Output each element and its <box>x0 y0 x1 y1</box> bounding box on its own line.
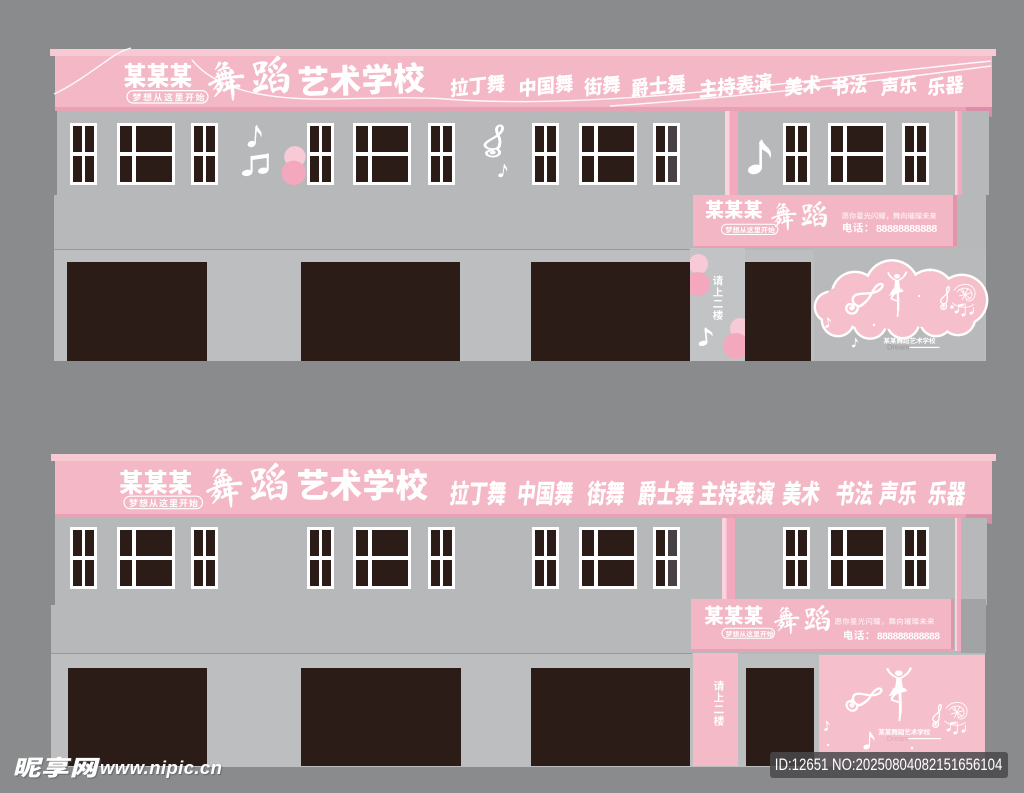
svg-text:888888888888: 888888888888 <box>877 631 940 642</box>
svg-text:Dream: Dream <box>887 734 910 743</box>
svg-text:Dream: Dream <box>887 343 910 352</box>
svg-text:88888888888: 88888888888 <box>876 223 937 235</box>
